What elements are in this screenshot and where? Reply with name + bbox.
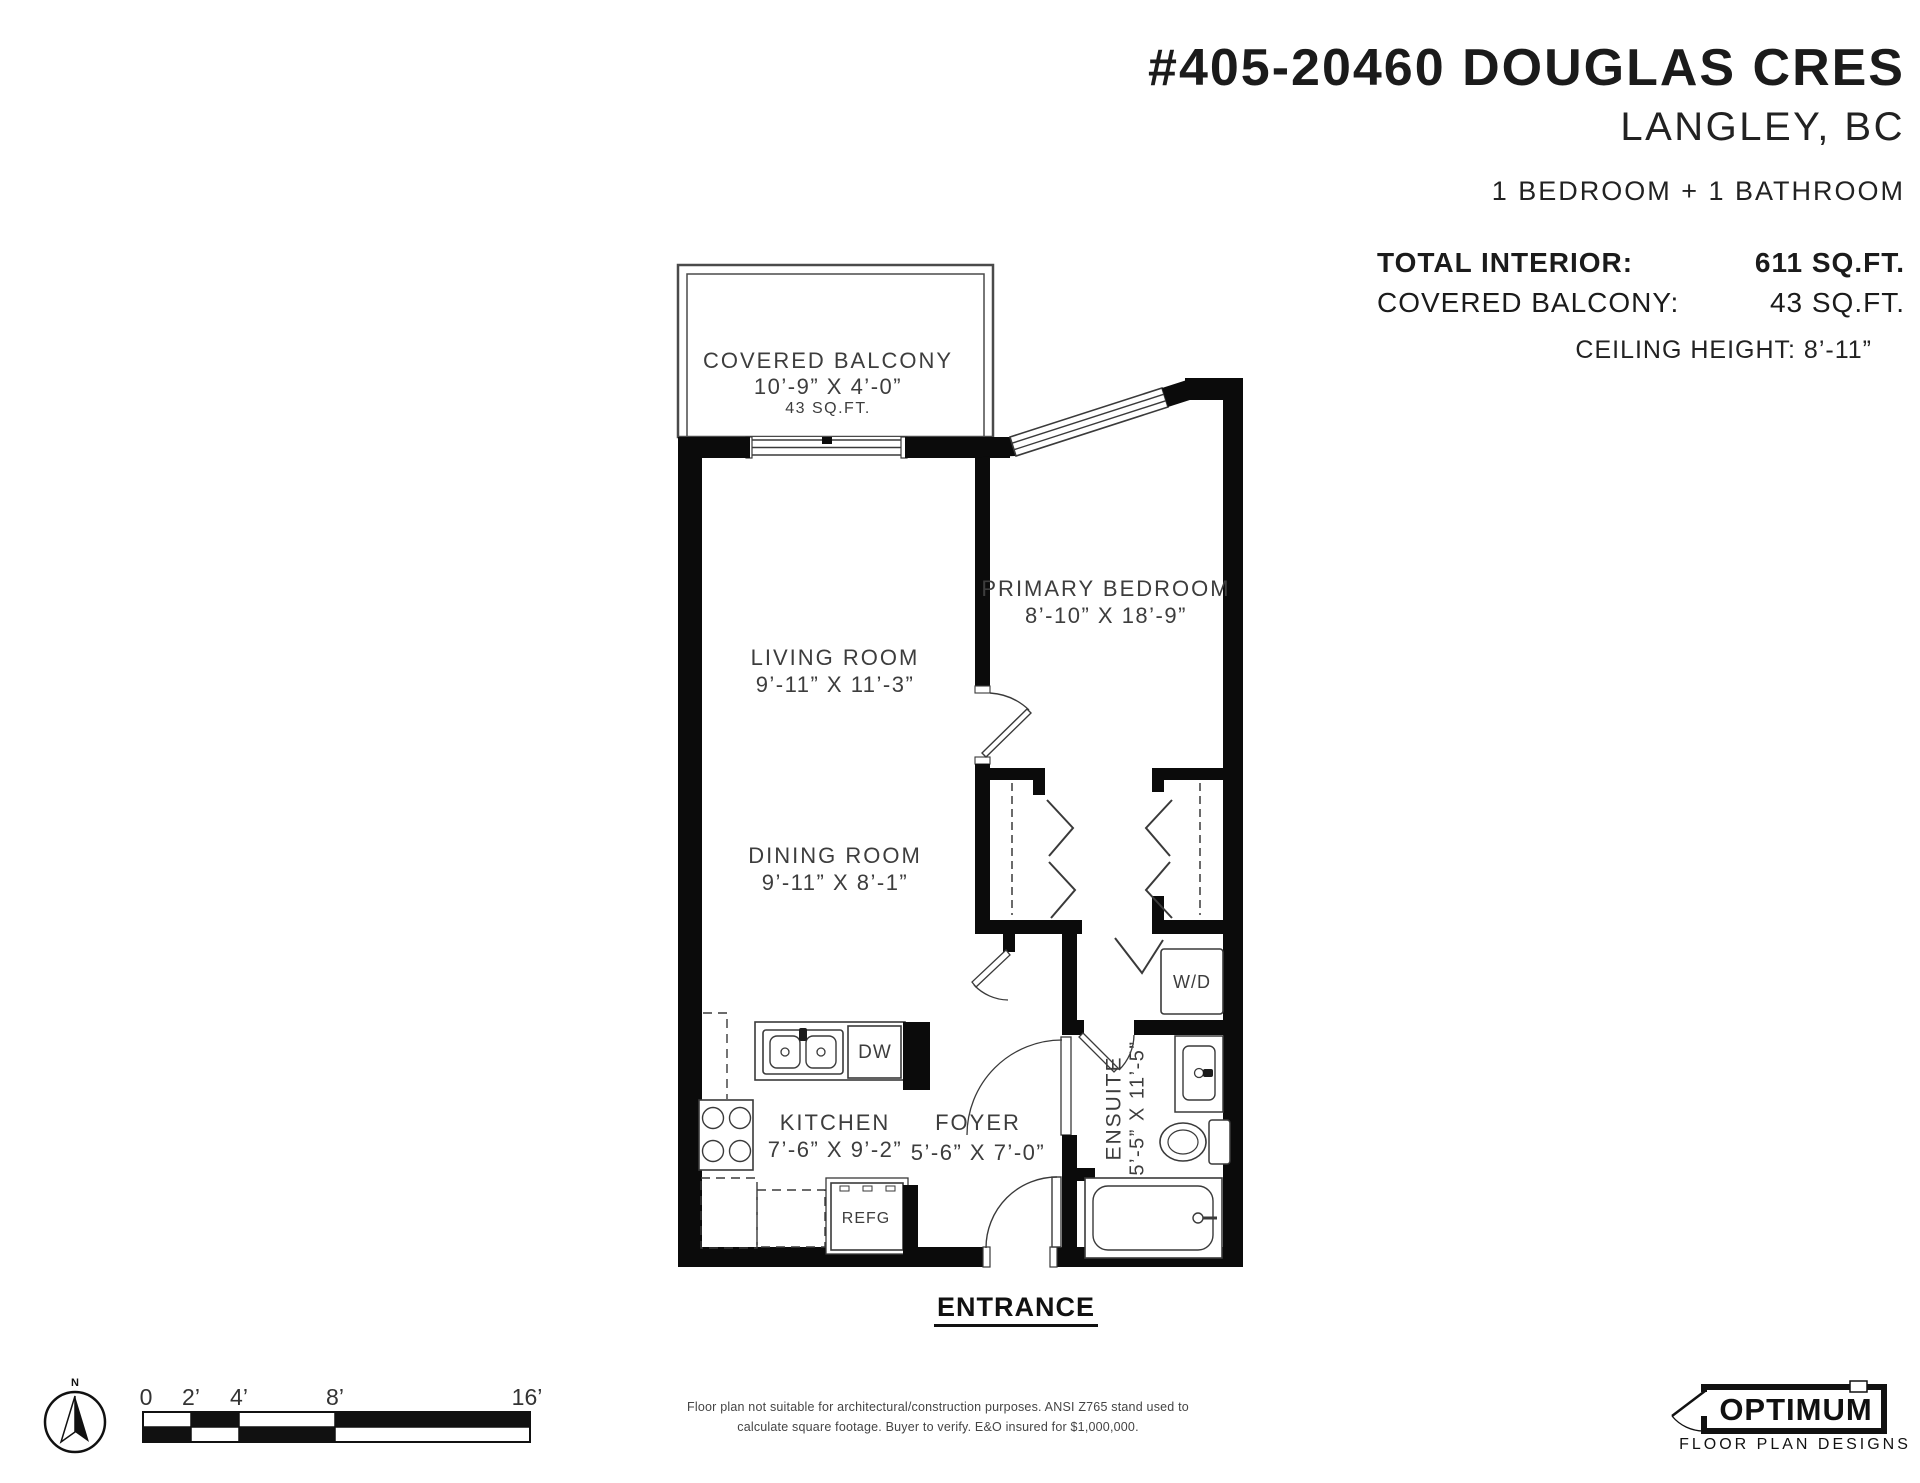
cabinet-dashed xyxy=(701,1178,757,1248)
entrance-door-leaf xyxy=(1052,1177,1061,1247)
closet-wall xyxy=(1152,768,1164,792)
floor-plan-page: #405-20460 DOUGLAS CRES LANGLEY, BC 1 BE… xyxy=(0,0,1920,1483)
window-mullion xyxy=(822,437,832,444)
scale-tick-2: 2’ xyxy=(182,1384,200,1411)
primary-bedroom-label: PRIMARY BEDROOM xyxy=(981,576,1230,602)
covered-balcony-label: COVERED BALCONY: xyxy=(1377,287,1679,319)
dining-room-label: DINING ROOM xyxy=(748,843,922,869)
total-interior-value: 611 SQ.FT. xyxy=(1755,247,1905,279)
wall-divider xyxy=(975,764,990,924)
balcony-dims: 10’-9” X 4’-0” xyxy=(754,374,902,400)
toilet-tank xyxy=(1209,1120,1230,1164)
ensuite-label: ENSUITE xyxy=(1103,1040,1127,1175)
foyer-dims: 5’-6” X 7’-0” xyxy=(911,1140,1045,1166)
page-subtitle-city: LANGLEY, BC xyxy=(1620,105,1905,150)
upper-cabinet-dashed xyxy=(703,1013,727,1099)
ensuite-label-group: ENSUITE 5’-5” X 11’-5” xyxy=(1103,1040,1150,1175)
scale-tick-0: 0 xyxy=(140,1384,153,1411)
entrance-label: ENTRANCE xyxy=(934,1292,1098,1327)
faucet xyxy=(799,1028,807,1041)
covered-balcony-value: 43 SQ.FT. xyxy=(1770,287,1905,319)
scale-tick-16: 16’ xyxy=(512,1384,543,1411)
hall-door-leaf xyxy=(1061,1037,1071,1135)
compass-n-label: N xyxy=(71,1377,79,1389)
dishwasher-label: DW xyxy=(858,1042,892,1064)
primary-bedroom-dims: 8’-10” X 18’-9” xyxy=(1025,603,1187,629)
bifold-door xyxy=(1115,938,1163,973)
bedroom-door-leaf xyxy=(982,709,1031,757)
wall xyxy=(950,437,1016,458)
refrigerator-label: REFG xyxy=(842,1210,890,1228)
entrance-door-arc xyxy=(986,1177,1057,1248)
kitchen-label: KITCHEN xyxy=(780,1110,891,1136)
closet-wall xyxy=(1152,896,1164,922)
door-jamb xyxy=(975,686,990,693)
floor-plan-drawing xyxy=(0,0,1920,1483)
bifold-door xyxy=(1047,800,1073,856)
wall-divider xyxy=(975,458,990,686)
toilet-bowl xyxy=(1160,1123,1206,1161)
washer-dryer-label: W/D xyxy=(1173,972,1211,993)
scale-tick-8: 8’ xyxy=(326,1384,344,1411)
closet-wall xyxy=(985,768,1045,780)
entrance-jamb xyxy=(1050,1247,1057,1267)
balcony-area: 43 SQ.FT. xyxy=(785,400,871,418)
logo-tagline: FLOOR PLAN DESIGNS xyxy=(1679,1436,1911,1454)
closet-wall xyxy=(1160,768,1223,780)
disclaimer-line-2: calculate square footage. Buyer to verif… xyxy=(737,1420,1139,1434)
ensuite-dims: 5’-5” X 11’-5” xyxy=(1127,1040,1150,1175)
kitchen-dims: 7’-6” X 9’-2” xyxy=(768,1137,902,1163)
bifold-door xyxy=(1146,800,1172,856)
disclaimer-line-1: Floor plan not suitable for architectura… xyxy=(687,1400,1189,1414)
wall xyxy=(1003,934,1015,952)
dining-room-dims: 9’-11” X 8’-1” xyxy=(762,870,909,896)
covered-balcony-row: COVERED BALCONY: 43 SQ.FT. xyxy=(1377,287,1905,319)
wall xyxy=(1062,1135,1077,1267)
wall xyxy=(1062,934,1077,1035)
bed-bath-config: 1 BEDROOM + 1 BATHROOM xyxy=(1492,176,1905,207)
hall-door2-arc xyxy=(974,985,1008,1000)
entrance-jamb xyxy=(983,1247,990,1267)
door-jamb xyxy=(975,757,990,764)
total-interior-row: TOTAL INTERIOR: 611 SQ.FT. xyxy=(1377,247,1905,279)
entrance-label-wrap: ENTRANCE xyxy=(934,1292,1098,1323)
wall xyxy=(903,1185,918,1267)
scale-bar xyxy=(143,1412,530,1442)
wall xyxy=(903,1022,930,1090)
closet-wall xyxy=(1152,920,1223,934)
total-interior-label: TOTAL INTERIOR: xyxy=(1377,247,1633,279)
living-room-dims: 9’-11” X 11’-3” xyxy=(756,672,915,698)
bifold-door xyxy=(1049,862,1075,918)
wall xyxy=(1134,1020,1223,1035)
hall-door2-leaf xyxy=(972,950,1010,987)
cabinet-dashed xyxy=(757,1190,825,1247)
bedroom-door-arc xyxy=(990,693,1029,710)
faucet xyxy=(1203,1069,1213,1077)
scale-tick-4: 4’ xyxy=(230,1384,248,1411)
closet-wall xyxy=(1033,780,1045,795)
closet-wall xyxy=(975,920,1082,934)
logo-name: OPTIMUM xyxy=(1719,1392,1872,1428)
ceiling-height: CEILING HEIGHT: 8’-11” xyxy=(1575,336,1872,365)
bedroom-diagonal-window xyxy=(1010,388,1168,456)
page-title: #405-20460 DOUGLAS CRES xyxy=(1148,38,1905,98)
foyer-label: FOYER xyxy=(935,1110,1021,1136)
balcony-label: COVERED BALCONY xyxy=(703,348,953,374)
living-room-label: LIVING ROOM xyxy=(751,645,920,671)
